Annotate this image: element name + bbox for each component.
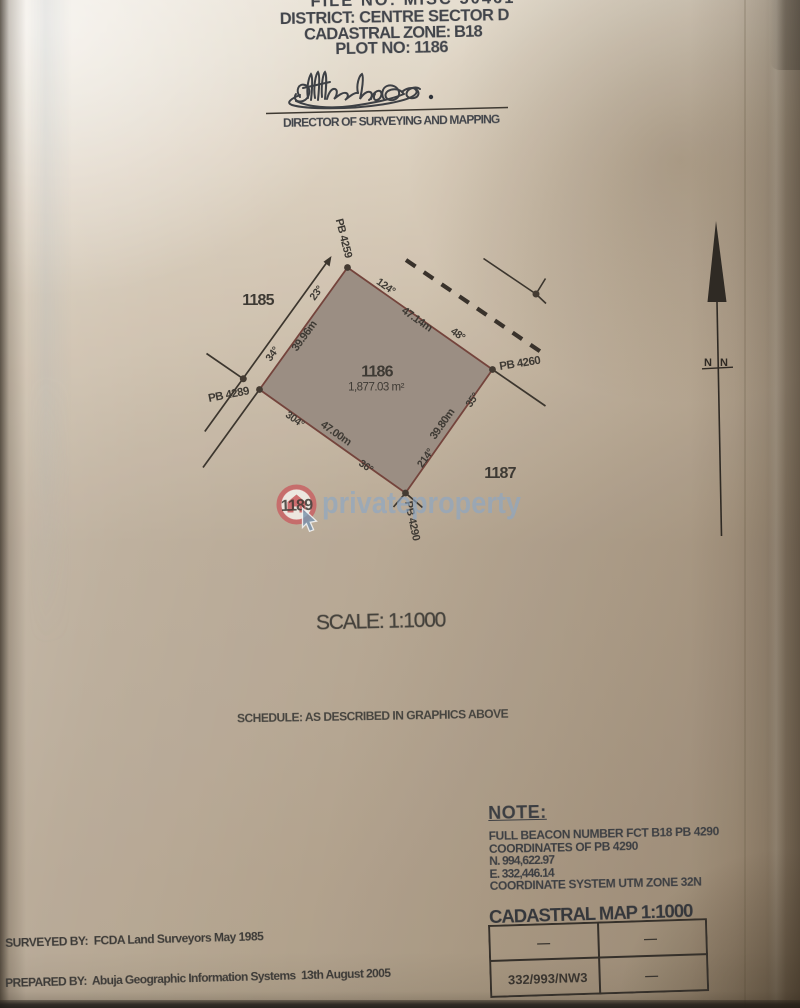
- svg-text:332/993/NW3: 332/993/NW3: [508, 970, 588, 987]
- svg-text:1185: 1185: [242, 292, 274, 309]
- svg-text:—: —: [537, 935, 550, 950]
- svg-text:privateproperty: privateproperty: [322, 485, 522, 520]
- svg-text:PB 4289: PB 4289: [207, 385, 250, 405]
- svg-text:1186: 1186: [361, 364, 393, 381]
- svg-text:PB 4260: PB 4260: [499, 355, 542, 373]
- svg-text:1187: 1187: [484, 465, 516, 482]
- svg-text:—: —: [645, 968, 658, 983]
- svg-text:1189: 1189: [281, 497, 314, 515]
- svg-text:1,877.03 m²: 1,877.03 m²: [348, 382, 405, 394]
- svg-text:PB 4259: PB 4259: [333, 217, 354, 259]
- svg-text:N: N: [704, 357, 712, 369]
- svg-text:—: —: [644, 931, 657, 946]
